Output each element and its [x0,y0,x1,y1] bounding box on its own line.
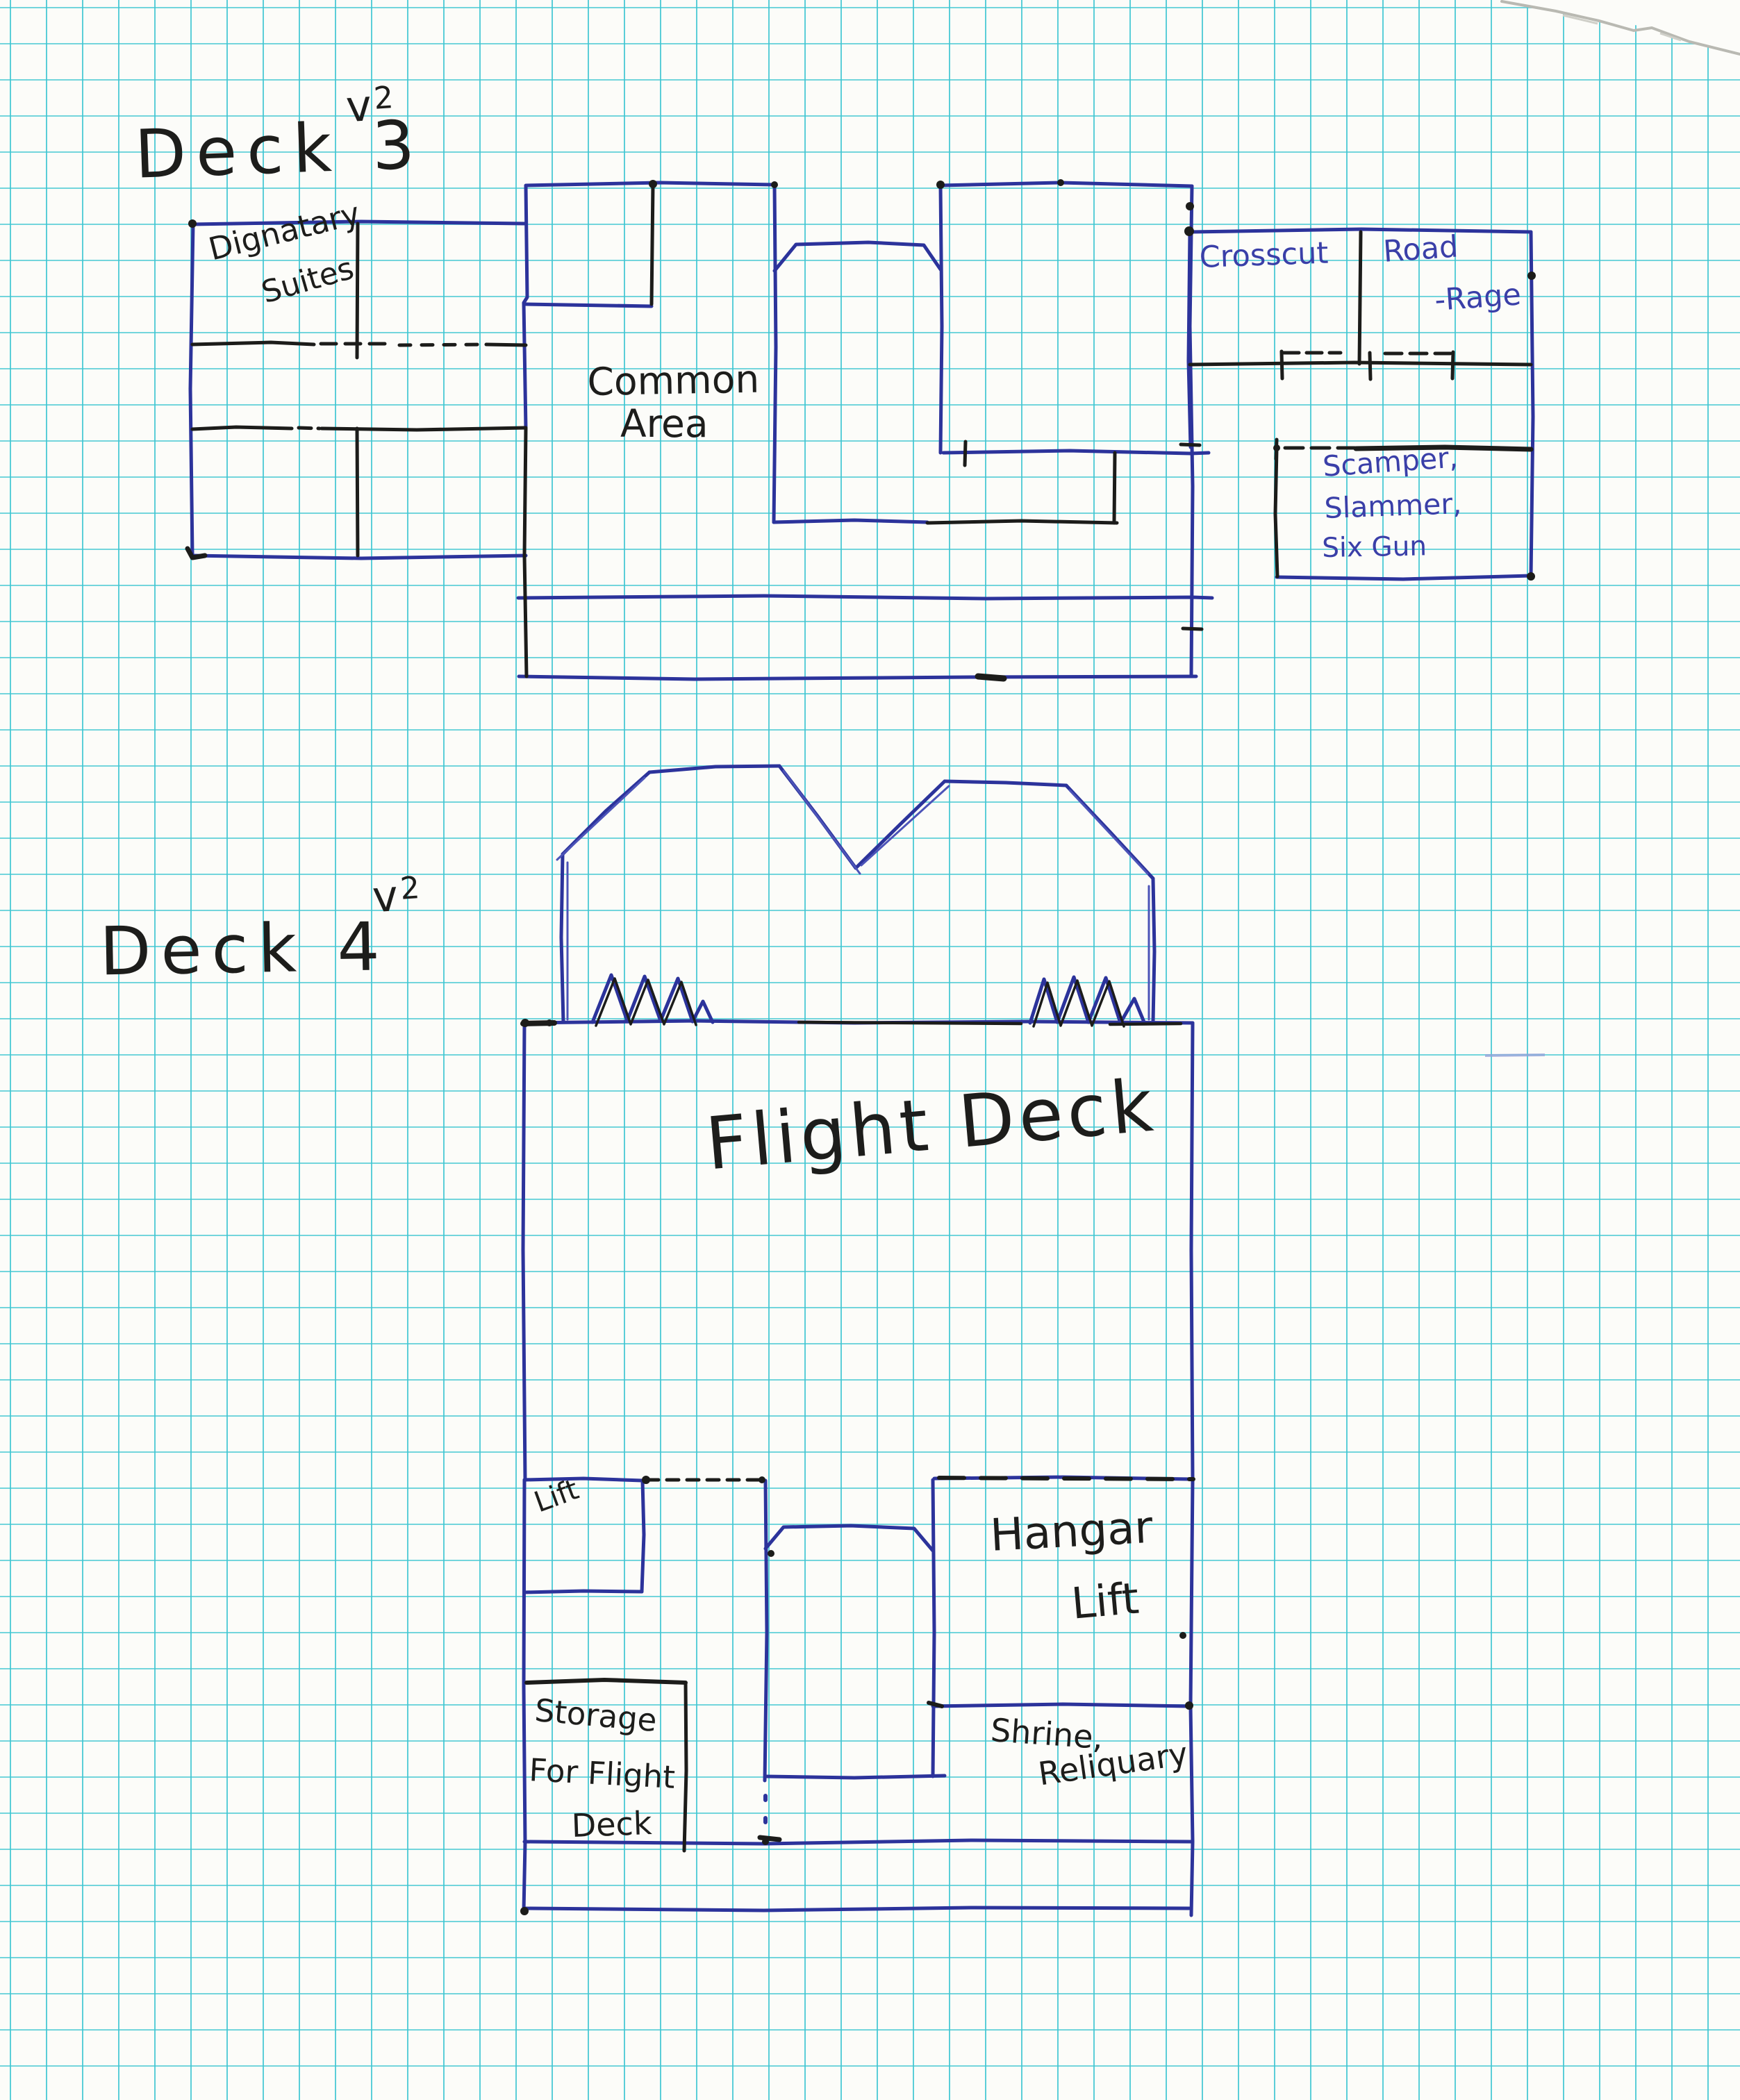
deck4-version: v2 [338,825,422,922]
stray-pen-mark [1485,1055,1545,1056]
room-label-road-rage-line2: -Rage [1434,280,1522,316]
ink-corner-dots [188,179,1536,1915]
room-label-storage-line3: Deck [571,1807,652,1842]
room-label-hangar-lift-line2: Lift [1070,1576,1141,1626]
floorplan-ink-drawing [0,0,1740,2100]
room-label-common-area-line1: Common [587,360,760,401]
paper-tear-top-right [1500,0,1740,56]
room-label-crosscut: Crosscut [1199,239,1329,274]
room-label-common-area-line2: Area [620,404,709,443]
scanned-deck-plan-page: { "colors": { "paper": "#fcfcf9", "grid_… [0,0,1740,2100]
deck4-title: Deck 4 [36,845,390,987]
room-label-six-gun: Six Gun [1322,533,1427,562]
room-label-storage-line2: For Flight [529,1754,676,1794]
room-label-hangar-lift-line1: Hangar [989,1506,1154,1559]
room-label-slammer: Slammer, [1324,490,1462,524]
deck3-version: v2 [311,35,395,131]
deck3-walls-black [188,185,1531,678]
room-label-road-rage-line1: Road [1382,232,1459,267]
